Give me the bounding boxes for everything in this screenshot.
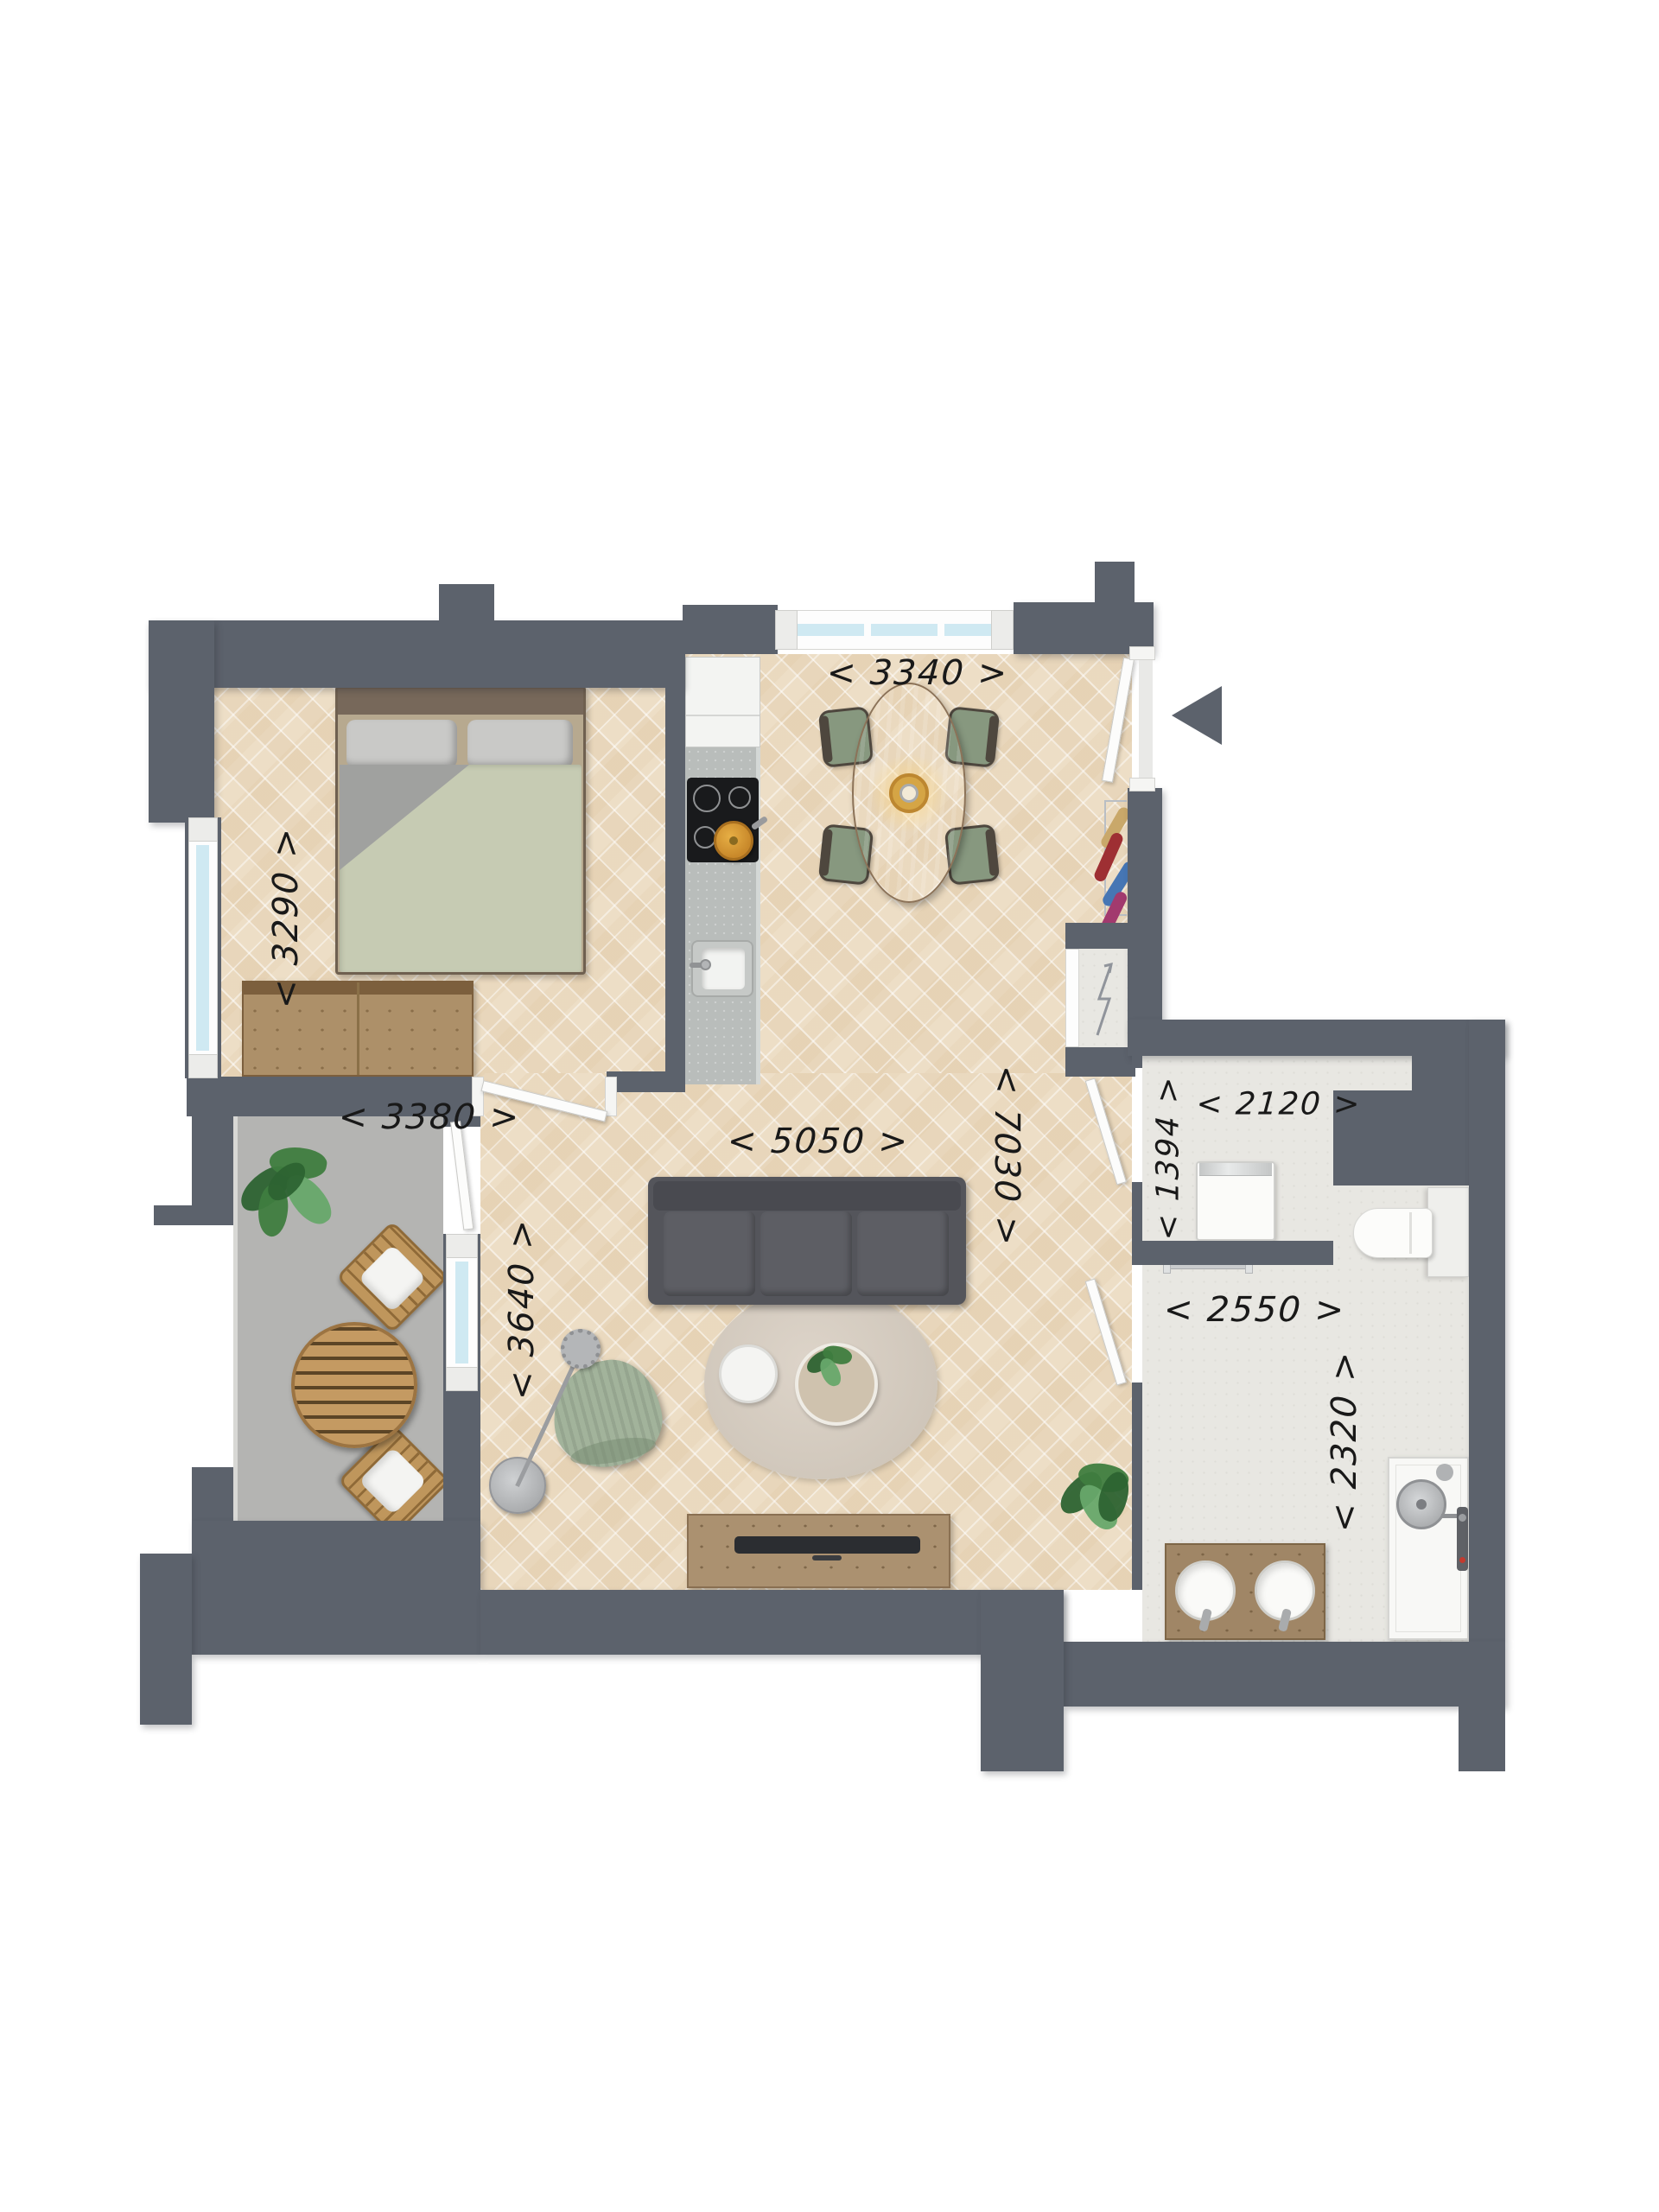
dimension-label: < 3290 > xyxy=(266,825,306,1009)
pillow-left xyxy=(346,720,457,768)
dimension-label: < 7030 > xyxy=(987,1064,1027,1248)
dresser-divider xyxy=(357,982,359,1075)
wall-meter-closet-bottom xyxy=(1065,1047,1135,1077)
shower-head-center xyxy=(1416,1499,1427,1510)
window-cap xyxy=(446,1234,478,1258)
wall-pillar-top-left xyxy=(439,584,494,624)
dimension-label: < 3380 > xyxy=(337,1097,521,1137)
tv-console xyxy=(687,1514,950,1588)
sofa xyxy=(648,1177,966,1305)
window-cap xyxy=(991,610,1014,650)
window-mullion xyxy=(864,622,871,638)
wall-top-kitchen xyxy=(683,605,778,654)
wall-meter-closet-top xyxy=(1065,923,1135,949)
wall-utility-top xyxy=(1128,1020,1505,1056)
lamp-core xyxy=(899,784,918,803)
cabinet-divider xyxy=(686,715,760,716)
wall-left-corner xyxy=(149,620,214,823)
mixer-knob xyxy=(1459,1514,1466,1522)
wall-pillar-bath-left xyxy=(981,1590,1064,1771)
bed xyxy=(335,686,586,975)
cooking-pot-icon xyxy=(714,821,753,861)
burner xyxy=(694,826,716,849)
washer-drawer xyxy=(1199,1163,1272,1176)
dimension-label: < 2320 > xyxy=(1325,1349,1364,1533)
floor-plan: < 3340 > < 3290 > < 3380 > < 5050 > < 70… xyxy=(0,0,1659,2212)
wall-bedroom-right xyxy=(665,654,685,1086)
coffee-table-small xyxy=(719,1344,778,1403)
headboard xyxy=(338,689,583,715)
wall-top-bedroom xyxy=(149,620,683,688)
dimension-label: < 2550 > xyxy=(1162,1290,1346,1330)
tv xyxy=(734,1536,920,1554)
duvet-fold xyxy=(340,765,469,870)
door-leaf-terrace xyxy=(450,1121,474,1230)
wall-pillar-bottom-left xyxy=(140,1554,192,1725)
burner xyxy=(728,786,751,809)
sofa-back xyxy=(653,1181,961,1211)
pendant-lamp-icon xyxy=(869,753,949,833)
burner xyxy=(693,785,721,812)
kitchen-tall-cabinet xyxy=(685,657,760,747)
terrace-plant-icon xyxy=(235,1139,339,1243)
shower-head-icon xyxy=(1396,1479,1446,1529)
window-cap xyxy=(775,610,798,650)
dimension-label: < 3640 > xyxy=(502,1217,542,1401)
wall-pillar-bottom-right xyxy=(1459,1707,1505,1771)
wall-pillar-top-right xyxy=(1095,562,1135,605)
window-cap xyxy=(188,817,218,842)
window-cap xyxy=(446,1367,478,1391)
pot-lid-knob xyxy=(729,836,738,845)
wall-right-outer xyxy=(1469,1020,1505,1642)
toilet xyxy=(1353,1208,1433,1258)
wall-utility-mass-a xyxy=(1412,1056,1469,1090)
dimension-label: < 3340 > xyxy=(825,653,1009,693)
table-plant-icon xyxy=(804,1341,855,1393)
entrance-arrow-icon xyxy=(1172,686,1222,745)
wall-bottom-terrace xyxy=(192,1521,480,1655)
dimension-label: < 2120 > xyxy=(1195,1087,1363,1122)
shower-mixer-icon xyxy=(1457,1507,1468,1571)
door-meter-closet xyxy=(1065,949,1079,1047)
window-mullion xyxy=(938,622,944,638)
toilet-seat-line xyxy=(1409,1212,1412,1254)
seat-cushion xyxy=(664,1211,755,1296)
tv-stand xyxy=(812,1555,842,1560)
seat-cushion xyxy=(857,1211,949,1296)
wall-bathroom-top xyxy=(1132,1241,1333,1265)
seat-cushion xyxy=(760,1211,852,1296)
wall-bottom-living xyxy=(480,1590,1064,1655)
dimension-label: < 1394 > xyxy=(1151,1074,1186,1242)
pillow-right xyxy=(467,720,573,768)
lamp-head xyxy=(561,1329,601,1369)
kitchen-sink-icon xyxy=(691,940,753,997)
wall-terrace-living-bottom xyxy=(443,1389,480,1535)
window-bedroom-glass xyxy=(196,845,209,1051)
lightning-icon xyxy=(1084,957,1122,1039)
wall-hall-right xyxy=(1128,788,1162,1039)
door-jamb xyxy=(1129,646,1155,660)
wall-living-right-a xyxy=(1132,1056,1142,1068)
sink-faucet-base xyxy=(700,959,711,970)
plant-icon xyxy=(1056,1457,1130,1531)
wall-terrace-left-tab xyxy=(154,1205,192,1225)
window-terrace-glass xyxy=(455,1262,468,1363)
wall-bathroom-bottom xyxy=(1064,1642,1505,1707)
window-top-glass xyxy=(786,624,1006,636)
wall-living-right-c xyxy=(1132,1382,1142,1590)
dimension-label: < 5050 > xyxy=(726,1122,910,1161)
door-jamb xyxy=(1129,778,1155,791)
toilet-ledge xyxy=(1427,1187,1469,1277)
mixer-red-dot xyxy=(1459,1557,1465,1563)
washing-machine xyxy=(1196,1161,1275,1241)
entrance-threshold xyxy=(1139,654,1153,788)
window-cap xyxy=(188,1054,218,1078)
terrace-table xyxy=(291,1322,417,1448)
shower-drain-icon xyxy=(1436,1464,1453,1481)
duvet xyxy=(340,765,582,972)
